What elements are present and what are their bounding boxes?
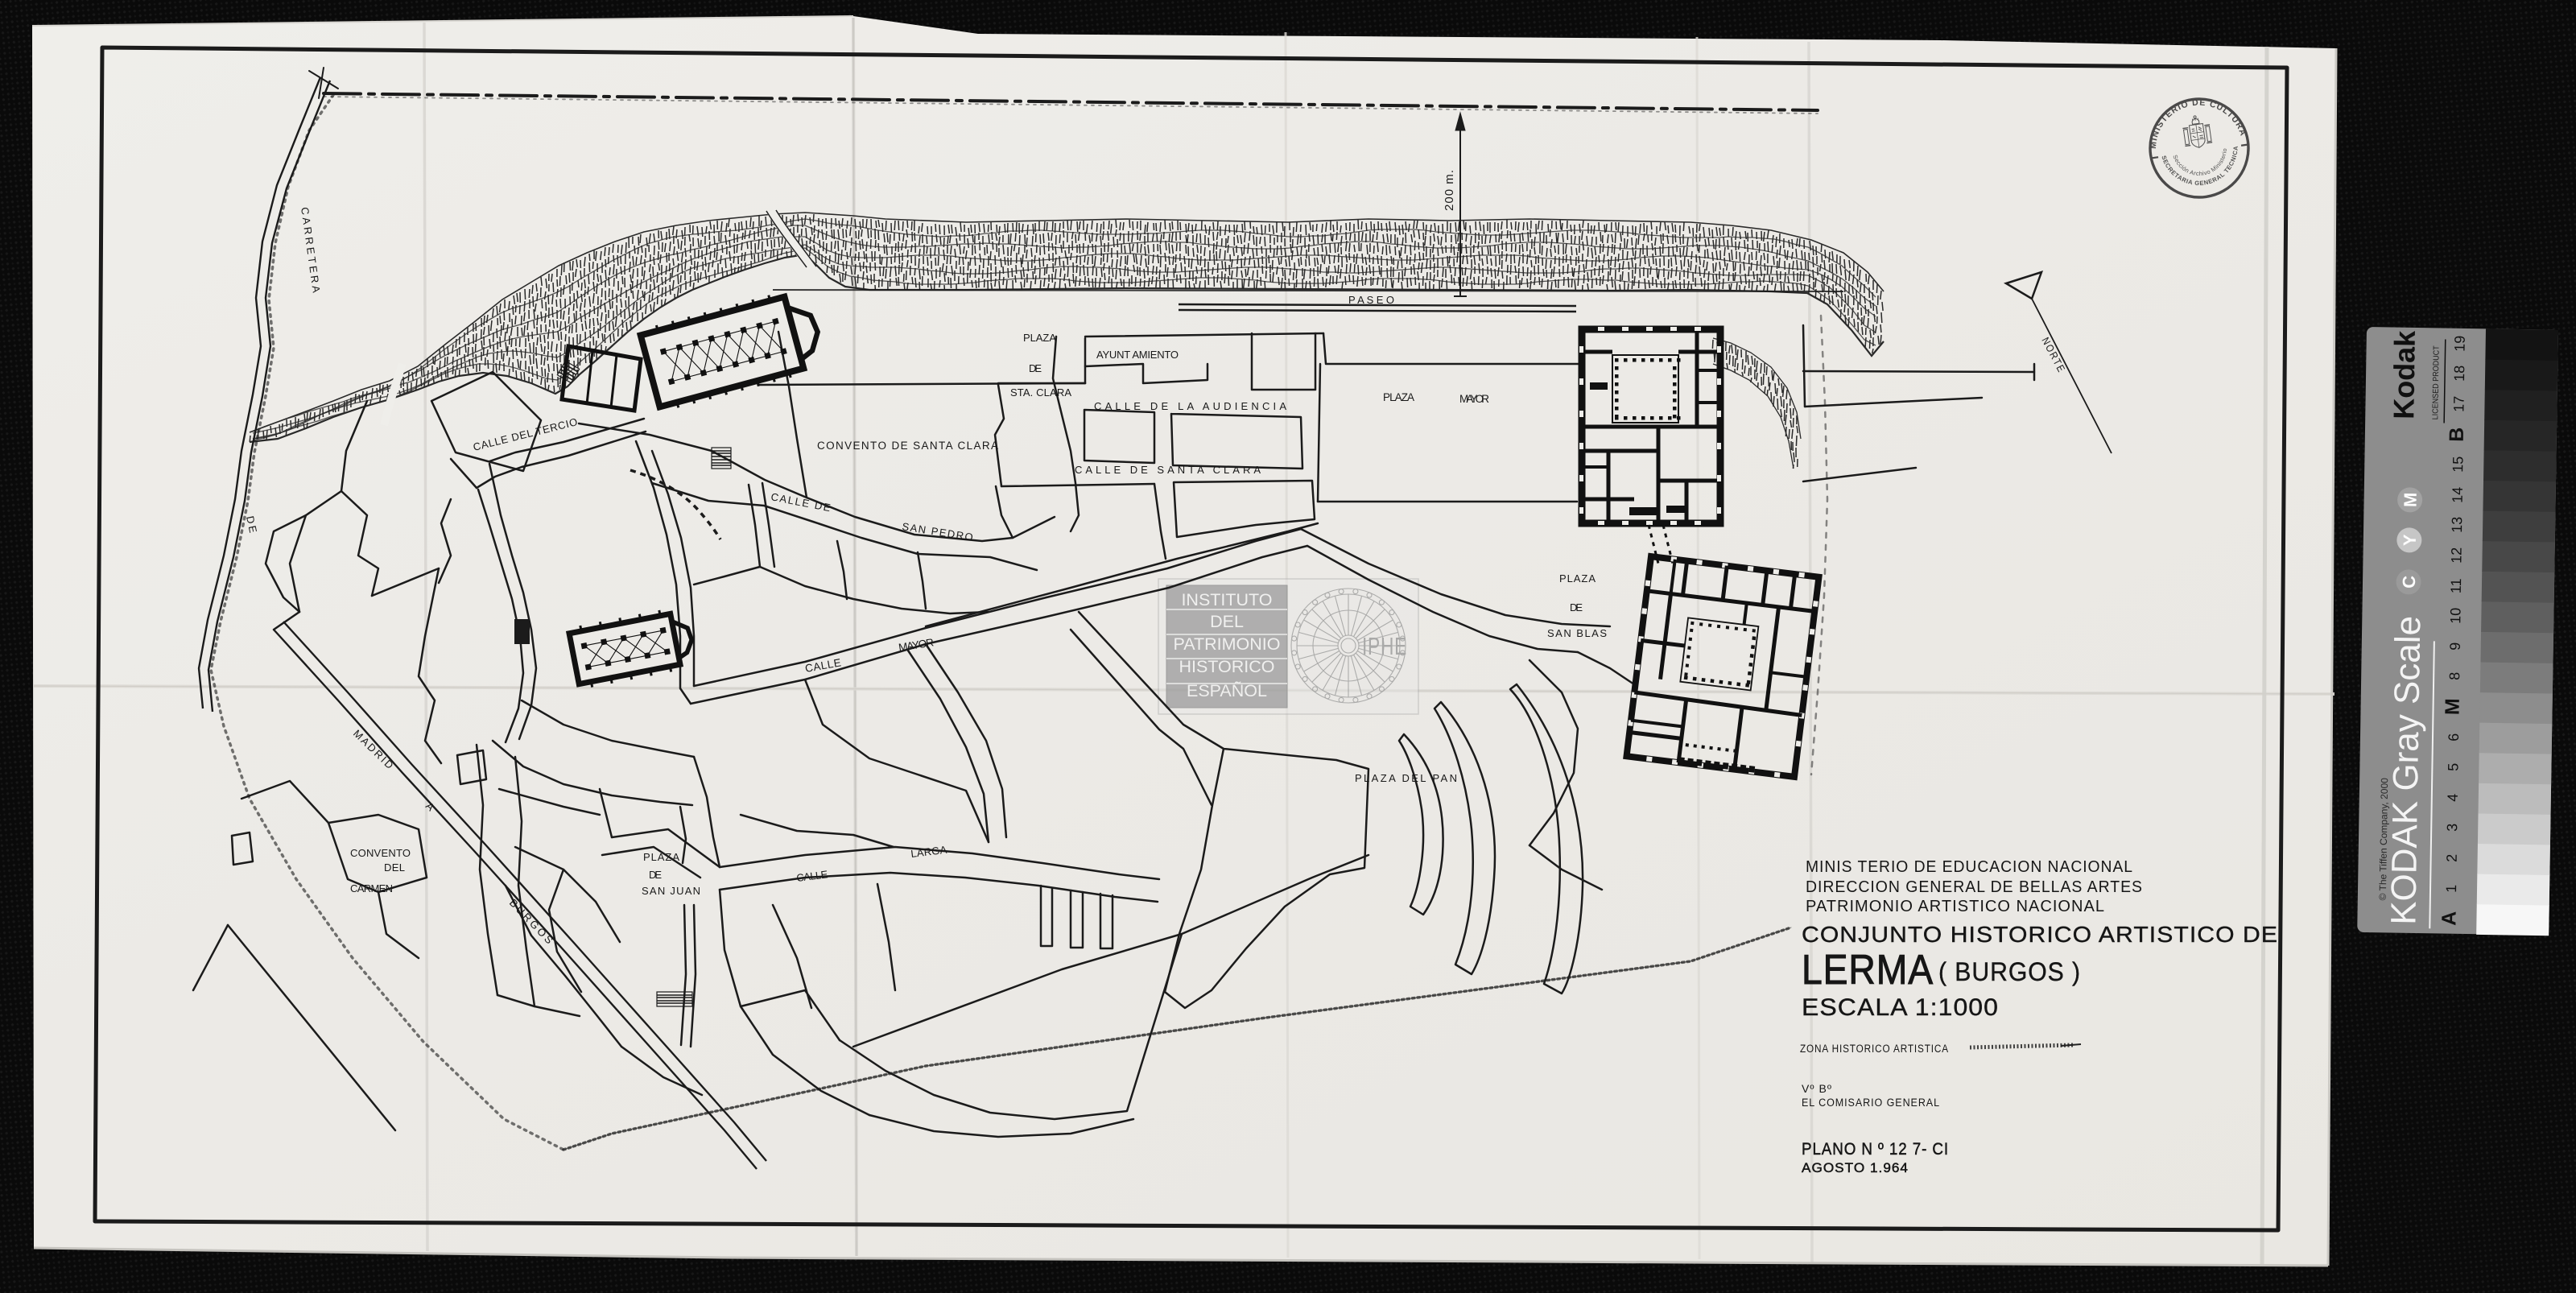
svg-text:C: C bbox=[2399, 576, 2419, 589]
svg-text:CONVENTO DE SANTA CLARA: CONVENTO DE SANTA CLARA bbox=[817, 440, 999, 452]
svg-text:3: 3 bbox=[2444, 824, 2460, 832]
svg-text:STA. CLARA: STA. CLARA bbox=[1010, 386, 1072, 399]
svg-text:ESPAÑOL: ESPAÑOL bbox=[1187, 680, 1267, 700]
svg-text:AYUNT AMIENTO: AYUNT AMIENTO bbox=[1096, 349, 1179, 361]
svg-text:15: 15 bbox=[2450, 456, 2466, 473]
svg-text:1: 1 bbox=[2443, 885, 2459, 893]
svg-text:B: B bbox=[2446, 428, 2468, 443]
svg-text:Y: Y bbox=[2400, 534, 2420, 546]
svg-text:MINIS TERIO DE EDUCACION: MINIS TERIO DE EDUCACION NACIONAL bbox=[1806, 858, 2133, 876]
svg-text:MAYOR: MAYOR bbox=[1459, 393, 1490, 405]
svg-text:ESCALA 1:1000: ESCALA 1:1000 bbox=[1802, 994, 1999, 1021]
svg-text:Kodak: Kodak bbox=[2387, 329, 2421, 419]
svg-text:19: 19 bbox=[2452, 336, 2468, 352]
svg-text:11: 11 bbox=[2448, 578, 2464, 593]
svg-text:PATRIMONIO: PATRIMONIO bbox=[1174, 634, 1281, 654]
svg-text:6: 6 bbox=[2446, 733, 2462, 742]
svg-text:13: 13 bbox=[2449, 517, 2465, 533]
svg-text:SAN BLAS: SAN BLAS bbox=[1547, 627, 1608, 639]
svg-text:( BURGOS ): ( BURGOS ) bbox=[1938, 957, 2081, 986]
svg-text:P A S E O: P A S E O bbox=[1348, 294, 1395, 306]
svg-text:PLAZA: PLAZA bbox=[1023, 332, 1057, 344]
svg-text:EL COMISARIO GENERAL: EL COMISARIO GENERAL bbox=[1802, 1097, 1940, 1109]
svg-text:M: M bbox=[2441, 698, 2463, 715]
svg-text:8: 8 bbox=[2446, 672, 2462, 680]
svg-text:CONVENTO: CONVENTO bbox=[350, 847, 411, 859]
svg-text:ZONA HISTORICO ARTISTICA: ZONA HISTORICO ARTISTICA bbox=[1800, 1043, 1949, 1055]
svg-text:18: 18 bbox=[2451, 366, 2467, 382]
svg-text:LERMA: LERMA bbox=[1802, 947, 1934, 994]
svg-text:PLAZA DEL PAN: PLAZA DEL PAN bbox=[1355, 772, 1458, 784]
svg-text:2: 2 bbox=[2444, 854, 2460, 862]
svg-text:DE: DE bbox=[1029, 362, 1042, 374]
svg-text:A: A bbox=[2438, 911, 2460, 926]
svg-text:Vº Bº: Vº Bº bbox=[1802, 1083, 1832, 1095]
svg-text:DEL: DEL bbox=[384, 861, 406, 874]
svg-text:PLAZA: PLAZA bbox=[643, 851, 680, 863]
svg-text:DE: DE bbox=[649, 869, 663, 881]
svg-text:5: 5 bbox=[2445, 763, 2461, 771]
svg-text:LICENSED PRODUCT: LICENSED PRODUCT bbox=[2431, 345, 2441, 419]
svg-text:HISTORICO: HISTORICO bbox=[1179, 657, 1274, 676]
svg-text:DIRECCION GENERAL DE BELLAS: DIRECCION GENERAL DE BELLAS ARTES bbox=[1806, 878, 2143, 896]
svg-text:17: 17 bbox=[2450, 396, 2467, 412]
svg-text:IPHE: IPHE bbox=[1362, 632, 1407, 660]
svg-text:200 m.: 200 m. bbox=[1443, 169, 1456, 211]
svg-text:INSTITUTO: INSTITUTO bbox=[1181, 590, 1272, 609]
svg-text:CONJUNTO HISTORICO ARTISTICO: CONJUNTO HISTORICO ARTISTICO DE bbox=[1802, 922, 2278, 947]
svg-text:DE: DE bbox=[1570, 601, 1583, 613]
svg-text:9: 9 bbox=[2447, 642, 2463, 651]
svg-text:DEL: DEL bbox=[1210, 612, 1244, 631]
svg-text:M: M bbox=[2400, 493, 2420, 508]
svg-text:© The Tiffen Company, 2000: © The Tiffen Company, 2000 bbox=[2377, 778, 2390, 901]
svg-text:CARMEN: CARMEN bbox=[350, 882, 394, 894]
svg-text:10: 10 bbox=[2447, 608, 2463, 624]
svg-text:14: 14 bbox=[2450, 487, 2466, 503]
svg-text:PATRIMONIO ARTISTICO: PATRIMONIO ARTISTICO NACIONAL bbox=[1806, 898, 2105, 915]
svg-text:PLANO N º 12 7- CI: PLANO N º 12 7- CI bbox=[1802, 1140, 1949, 1159]
svg-text:PLAZA: PLAZA bbox=[1383, 391, 1415, 403]
svg-text:AGOSTO 1.964: AGOSTO 1.964 bbox=[1802, 1160, 1909, 1175]
svg-text:SAN JUAN: SAN JUAN bbox=[642, 885, 701, 897]
svg-text:PLAZA: PLAZA bbox=[1559, 572, 1596, 585]
svg-text:12: 12 bbox=[2448, 547, 2464, 564]
svg-text:4: 4 bbox=[2445, 794, 2461, 802]
svg-text:KODAK Gray Scale: KODAK Gray Scale bbox=[2384, 616, 2428, 926]
